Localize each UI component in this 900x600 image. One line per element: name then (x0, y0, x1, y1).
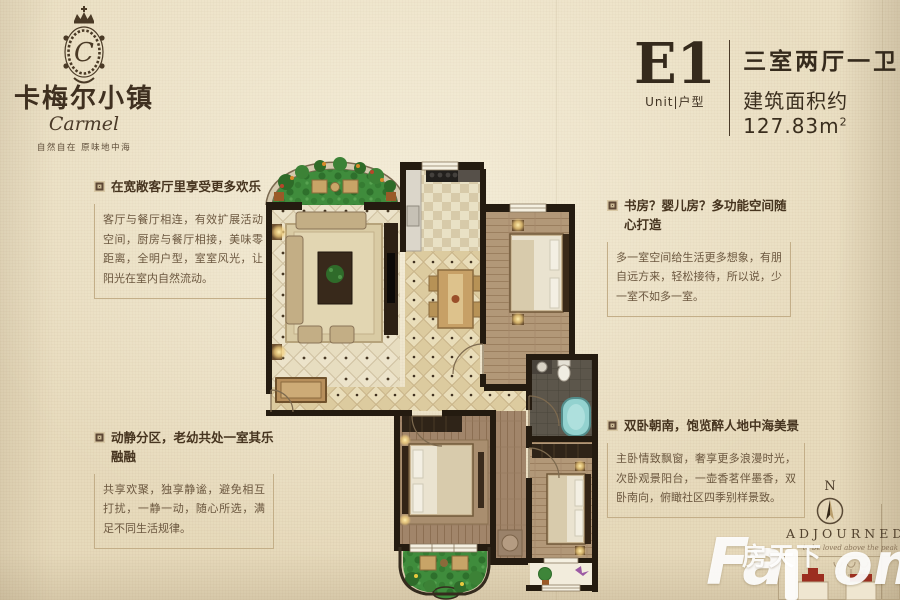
unit-spec-column: 三室两厅一卫 建筑面积约127.83m2 (743, 38, 900, 138)
floorplan-poster: { "logo": { "title": "卡梅尔小镇", "monogram"… (0, 0, 900, 600)
feature-header: 动静分区，老幼共处一室其乐融融 (94, 429, 274, 467)
unit-code: E1 (634, 38, 716, 91)
compass-north-label: N (806, 479, 854, 494)
brand-logo: C 卡梅尔小镇 Carmel 自然自在 原味地中海 (8, 6, 160, 153)
feature-block-zoning: 动静分区，老幼共处一室其乐融融 共享欢聚，独享静谧，避免相互打扰，一静一动，随心… (94, 429, 274, 549)
feature-header: 书房？婴儿房？多功能空间随心打造 (607, 197, 791, 235)
fang-watermark-bar (785, 549, 798, 600)
feature-block-bedrooms: 双卧朝南，饱览醉人地中海美景 主卧情致飘窗，奢享更多浪漫时光，次卧观景阳台，一壶… (607, 417, 805, 518)
logo-tagline: 自然自在 原味地中海 (8, 141, 160, 153)
feature-title: 书房？婴儿房？多功能空间随心打造 (624, 197, 791, 235)
floor-plan (262, 148, 612, 600)
corridor-cabinet (498, 530, 522, 556)
unit-divider (729, 40, 731, 136)
fang-watermark-right: om (833, 530, 900, 598)
feature-block-flexroom: 书房？婴儿房？多功能空间随心打造 多一室空间给生活更多想象，有朋自远方来，轻松接… (607, 197, 791, 317)
unit-title-block: E1 Unit|户型 三室两厅一卫 建筑面积约127.83m2 (634, 38, 900, 138)
logo-crest-icon: C (52, 6, 116, 86)
feature-body: 主卧情致飘窗，奢享更多浪漫时光，次卧观景阳台，一壶香茗伴墨香，双卧南向，俯瞰社区… (607, 443, 805, 518)
feature-bullet-icon (94, 181, 105, 192)
logo-title: 卡梅尔小镇 (8, 86, 160, 112)
logo-script: Carmel (8, 113, 160, 135)
feature-body: 共享欢聚，独享静谧，避免相互打扰，一静一动，随心所选，满足不同生活规律。 (94, 474, 274, 549)
feature-title: 在宽敞客厅里享受更多欢乐 (111, 178, 261, 197)
feature-bullet-icon (94, 432, 105, 443)
unit-layout: 三室两厅一卫 (743, 42, 900, 76)
feature-body: 客厅与餐厅相连，有效扩展活动空间，厨房与餐厅相接，美味零距离，全明户型，室室风光… (94, 204, 272, 299)
logo-monogram: C (74, 38, 94, 68)
feature-header: 双卧朝南，饱览醉人地中海美景 (607, 417, 805, 436)
unit-code-column: E1 Unit|户型 (634, 38, 716, 138)
feature-body: 多一室空间给生活更多想象，有朋自远方来，轻松接待，所以说，少一室不如多一室。 (607, 242, 791, 317)
feature-title: 双卧朝南，饱览醉人地中海美景 (624, 417, 799, 436)
bedroom-northeast-furniture (510, 218, 569, 326)
unit-sub-label: Unit|户型 (634, 93, 716, 110)
compass: N (806, 479, 854, 530)
compass-icon (815, 496, 845, 526)
fang-watermark-cn: 房天下 (742, 537, 823, 573)
feature-header: 在宽敞客厅里享受更多欢乐 (94, 178, 272, 197)
unit-area: 建筑面积约127.83m2 (743, 85, 900, 138)
feature-title: 动静分区，老幼共处一室其乐融融 (111, 429, 274, 467)
feature-block-living: 在宽敞客厅里享受更多欢乐 客厅与餐厅相连，有效扩展活动空间，厨房与餐厅相接，美味… (94, 178, 272, 299)
